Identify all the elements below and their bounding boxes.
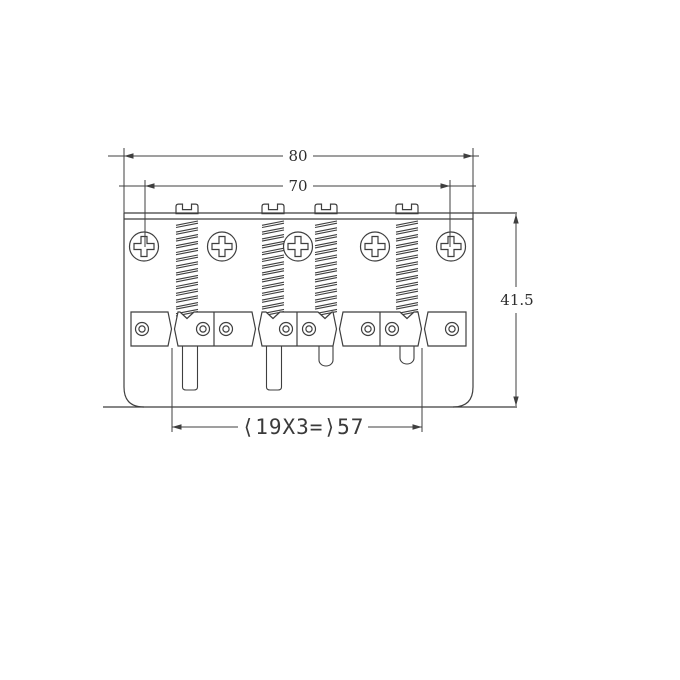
spring-icon (396, 221, 418, 316)
phillips-screw-icon (361, 232, 390, 261)
arrowhead-left-icon (124, 153, 134, 158)
phillips-screw-icon (437, 232, 466, 261)
intonation-screw-head-icons (176, 204, 418, 214)
phillips-screw-icon (208, 232, 237, 261)
arrowhead-up-icon (513, 214, 518, 224)
grub-screw-icon (220, 323, 233, 336)
grub-screw-icon (280, 323, 293, 336)
overall-width-label: 80 (288, 147, 307, 165)
slot-screw-head-icon (176, 204, 198, 214)
dimension-depth (513, 214, 518, 406)
screw-spacing-label: 70 (288, 177, 307, 195)
phillips-screw-icon (130, 232, 159, 261)
phillips-screw-icon (284, 232, 313, 261)
mounting-screws (130, 232, 466, 261)
arrowhead-left-icon (172, 424, 182, 429)
spring-icon (315, 221, 337, 316)
arrowhead-left-icon (145, 183, 155, 188)
string-peg (267, 346, 282, 390)
slot-screw-head-icon (315, 204, 337, 214)
arrowhead-down-icon (513, 397, 518, 407)
grub-screw-icon (197, 323, 210, 336)
slot-screw-head-icon (396, 204, 418, 214)
technical-drawing-canvas: 80 70 41.5 ⟨19X3=⟩57 (0, 0, 680, 680)
depth-label: 41.5 (500, 291, 533, 309)
string-spacing-label: ⟨19X3=⟩57 (242, 415, 365, 439)
bass-bridge-drawing: 80 70 41.5 ⟨19X3=⟩57 (0, 0, 680, 680)
saddle-row (131, 312, 466, 346)
arrowhead-right-icon (464, 153, 474, 158)
slot-screw-head-icon (262, 204, 284, 214)
string-peg (400, 346, 414, 364)
grub-screw-icon (386, 323, 399, 336)
arrowhead-right-icon (413, 424, 423, 429)
grub-screw-icon (446, 323, 459, 336)
string-peg (183, 346, 198, 390)
grub-screw-icon (303, 323, 316, 336)
spring-icon (262, 221, 284, 316)
string-pegs (183, 346, 415, 390)
string-peg (319, 346, 333, 366)
arrowhead-right-icon (441, 183, 451, 188)
grub-screw-icon (362, 323, 375, 336)
spring-icon (176, 221, 198, 316)
saddle-block (175, 312, 256, 346)
grub-screw-icon (136, 323, 149, 336)
